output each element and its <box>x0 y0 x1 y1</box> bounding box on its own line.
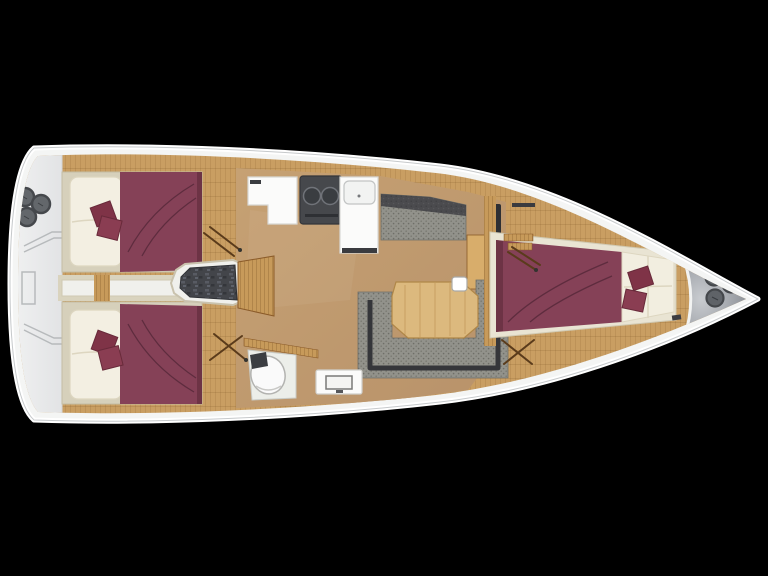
duvet-edge <box>496 240 503 332</box>
throw-cushion <box>98 346 123 370</box>
maroon-duvet <box>496 240 622 332</box>
throw-cushion <box>97 216 122 240</box>
center-corridor <box>58 275 186 301</box>
toilet-tank <box>250 352 268 369</box>
drain-icon <box>358 195 361 198</box>
burner-icon <box>304 188 321 205</box>
yacht-floorplan <box>0 0 768 576</box>
cup-icon <box>452 277 467 291</box>
rail-end <box>238 248 242 252</box>
duvet-edge <box>197 172 202 270</box>
throw-cushion <box>622 289 646 312</box>
sink-basin <box>344 181 375 204</box>
rail-end <box>244 358 248 362</box>
rail-end <box>534 268 538 272</box>
duvet-edge <box>197 306 202 404</box>
vanity-tap-icon <box>336 390 343 393</box>
washbasin <box>326 376 352 389</box>
aft-cabin-starboard <box>62 302 202 404</box>
faucet-icon <box>250 180 261 184</box>
unit-kick-strip <box>342 248 377 253</box>
companionway-steps <box>238 256 274 316</box>
entry-step <box>504 234 533 241</box>
aft-cabin-port <box>62 172 202 272</box>
burner-icon <box>322 188 339 205</box>
engine-hatch <box>180 265 237 300</box>
corridor-floor <box>62 280 182 296</box>
vent-strip <box>512 203 535 207</box>
floorplan-canvas <box>0 0 768 576</box>
corridor-wood-step <box>94 275 110 301</box>
oven-handle <box>305 214 338 217</box>
